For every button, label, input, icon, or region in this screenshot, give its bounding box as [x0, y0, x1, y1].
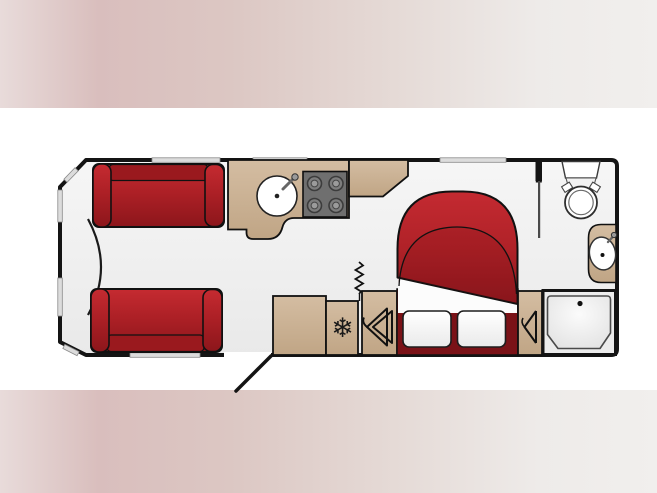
sofa-bottom-left-bolster [91, 289, 109, 352]
toilet [562, 162, 601, 219]
background-band-bottom [0, 390, 657, 493]
window-front-left-upper [58, 190, 63, 222]
toilet-bowl-inner [569, 190, 593, 214]
shower-drain [577, 301, 582, 306]
sofa-bottom-right-bolster [203, 290, 222, 352]
door-opening [224, 352, 271, 359]
island-double-bed [397, 192, 518, 356]
pillow-left [403, 311, 451, 347]
partition-sliding-door [538, 181, 540, 238]
burner-center [311, 202, 318, 209]
kitchen-base-cabinet [273, 296, 326, 355]
window-bottom-lounge [130, 353, 200, 358]
window-top-lounge [152, 158, 220, 163]
burner-center [333, 202, 340, 209]
pillow-right [458, 311, 506, 347]
parallel-sofa-top [93, 164, 224, 227]
fridge: ❄ [326, 301, 358, 355]
sofa-bottom-backrest [107, 335, 204, 352]
burner-center [333, 180, 340, 187]
washbasin [587, 225, 618, 283]
sofa-top-left-bolster [93, 164, 111, 227]
floorplan-image: ❄ [0, 0, 657, 493]
sofa-top-backrest [109, 165, 208, 181]
basin-tap-knob [611, 232, 616, 237]
shower [543, 291, 616, 355]
sink-tap-knob [292, 174, 298, 180]
four-burner-hob [303, 172, 347, 218]
toilet-cistern [562, 162, 600, 179]
basin-drain [601, 253, 605, 257]
burner-center [311, 180, 318, 187]
bedside-cabinet [518, 291, 542, 355]
background-band-top [0, 0, 657, 108]
fridge-snowflake-icon: ❄ [331, 313, 354, 344]
window-top-bedroom [440, 158, 506, 163]
sofa-top-right-bolster [205, 165, 224, 227]
wardrobe [362, 291, 397, 355]
sink-drain [275, 194, 280, 199]
parallel-sofa-bottom [91, 289, 222, 352]
window-front-left-lower [58, 278, 63, 316]
